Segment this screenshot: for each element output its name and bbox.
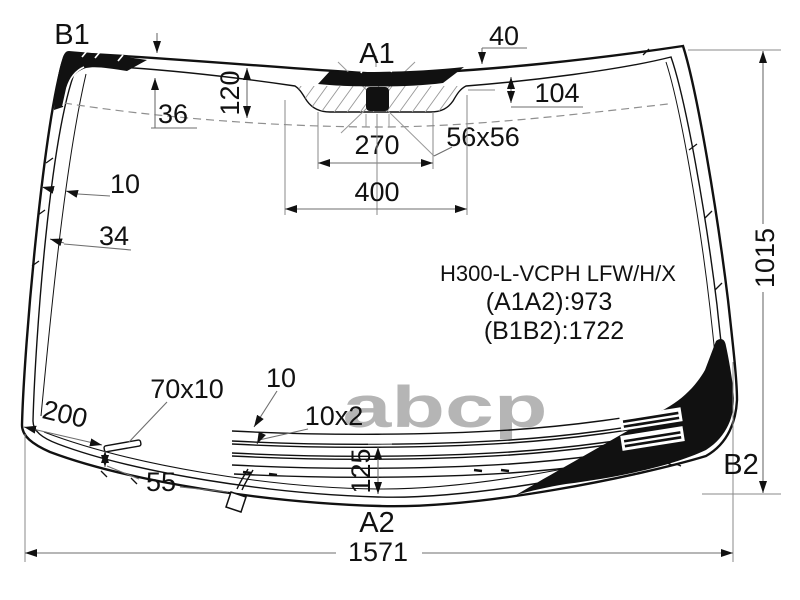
- dim-34-label: 34: [99, 221, 129, 251]
- corner-label-a2: A2: [359, 507, 394, 539]
- dim-36-label: 36: [158, 99, 188, 129]
- dim-56x56-label: 56x56: [446, 122, 520, 152]
- dim-10x2-label: 10x2: [305, 401, 364, 431]
- spec-a1a2: (A1A2):973: [486, 288, 612, 316]
- dim-120-label: 120: [215, 70, 245, 115]
- dim-1571-label: 1571: [348, 537, 408, 567]
- dim-55-label: 55: [146, 467, 176, 497]
- dim-70x10-label: 70x10: [150, 374, 224, 404]
- dim-400-label: 400: [354, 177, 399, 207]
- windshield-drawing-page: abcp: [0, 0, 800, 600]
- dimension-120: 120: [215, 68, 247, 118]
- watermark-text: abcp: [343, 375, 548, 440]
- part-code: H300-L-VCPH LFW/H/X: [440, 261, 676, 286]
- dim-1015-label: 1015: [750, 228, 780, 288]
- dim-10-left-label: 10: [110, 169, 140, 199]
- dimension-56x56: 56x56: [434, 122, 520, 156]
- dim-10-bottom-label: 10: [266, 363, 296, 393]
- sensor-window: [366, 87, 389, 111]
- dim-104-label: 104: [534, 78, 579, 108]
- corner-label-b2: B2: [723, 449, 758, 481]
- corner-label-b1: B1: [54, 19, 89, 51]
- dim-40-label: 40: [489, 21, 519, 51]
- dim-125-label: 125: [346, 448, 376, 493]
- spec-b1b2: (B1B2):1722: [484, 317, 624, 345]
- corner-label-a1: A1: [359, 38, 394, 70]
- windshield-diagram: abcp: [0, 0, 800, 600]
